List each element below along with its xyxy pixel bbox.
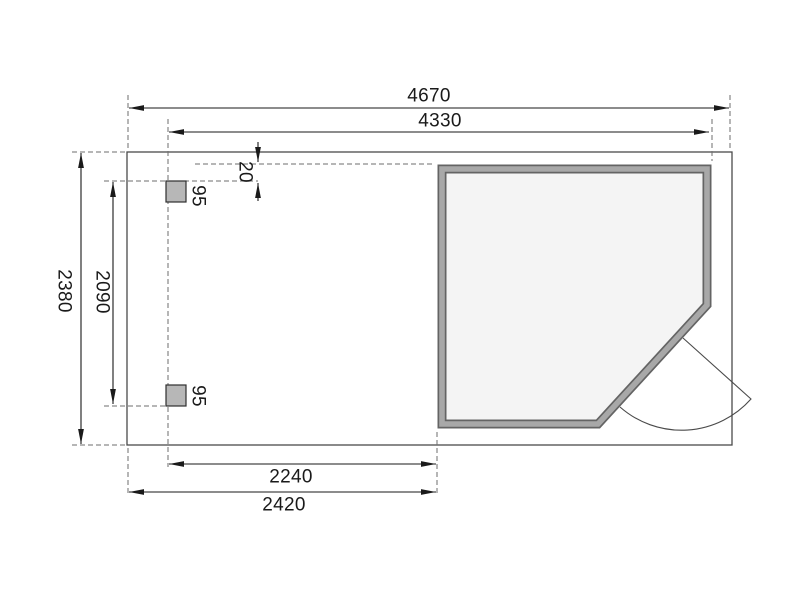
dim-label-annex-outer: 2420 <box>262 496 305 515</box>
dim-label-depth-total: 2380 <box>55 269 74 312</box>
dim-label-annex-inner: 2240 <box>269 468 312 487</box>
floor-plan-drawing <box>0 0 800 600</box>
floor-plan-page: 4670 4330 20 2380 2090 95 95 2240 2420 <box>0 0 800 600</box>
dim-label-post-top-size: 95 <box>189 185 208 207</box>
dim-label-width-total: 4670 <box>407 87 450 106</box>
post-bottom <box>166 385 186 406</box>
dim-label-post-bottom-size: 95 <box>189 385 208 407</box>
post-top <box>166 181 186 202</box>
dim-label-post-spacing: 2090 <box>93 270 112 313</box>
dim-label-offset-top: 20 <box>236 161 255 183</box>
dim-label-width-inner: 4330 <box>418 112 461 131</box>
